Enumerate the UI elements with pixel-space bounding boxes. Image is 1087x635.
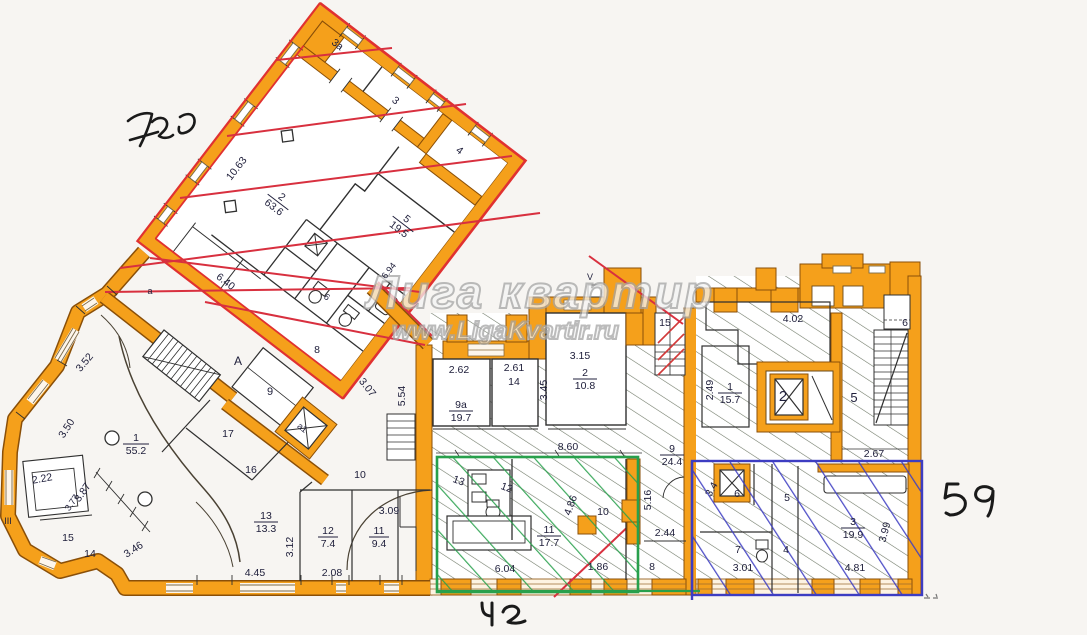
svg-text:10: 10 (597, 506, 609, 518)
svg-text:V: V (587, 272, 593, 282)
svg-text:15: 15 (659, 317, 671, 329)
svg-text:16: 16 (245, 464, 257, 476)
svg-text:6: 6 (902, 317, 908, 329)
svg-text:2.08: 2.08 (322, 567, 343, 579)
svg-text:www.LigaKvartir.ru: www.LigaKvartir.ru (392, 317, 619, 345)
svg-text:2: 2 (779, 388, 787, 405)
svg-text:3.09: 3.09 (379, 505, 400, 517)
svg-text:12: 12 (322, 525, 334, 537)
svg-text:11: 11 (374, 525, 385, 537)
svg-text:2.49: 2.49 (704, 380, 716, 401)
svg-text:14: 14 (84, 548, 96, 560)
svg-text:4.81: 4.81 (845, 562, 866, 574)
svg-text:17: 17 (222, 428, 234, 440)
svg-text:2.67: 2.67 (864, 448, 885, 460)
svg-text:a: a (147, 286, 152, 296)
svg-text:6.04: 6.04 (495, 563, 516, 575)
svg-text:8: 8 (649, 561, 655, 573)
svg-text:4.45: 4.45 (245, 567, 266, 579)
svg-text:3: 3 (850, 516, 856, 528)
svg-text:19.9: 19.9 (843, 529, 864, 541)
svg-text:5: 5 (850, 390, 857, 405)
svg-text:10.8: 10.8 (575, 380, 596, 392)
svg-text:9.4: 9.4 (372, 538, 387, 550)
svg-text:8.60: 8.60 (558, 441, 579, 453)
svg-text:5.54: 5.54 (396, 386, 408, 407)
svg-text:2.61: 2.61 (504, 362, 525, 374)
svg-text:2.62: 2.62 (449, 364, 470, 376)
svg-text:8: 8 (314, 344, 320, 356)
svg-text:Лига квартир: Лига квартир (364, 266, 714, 318)
svg-text:2: 2 (582, 367, 588, 379)
svg-text:3.15: 3.15 (570, 350, 591, 362)
svg-text:5.16: 5.16 (642, 490, 654, 511)
svg-text:1: 1 (133, 432, 139, 444)
svg-text:3.45: 3.45 (538, 380, 550, 401)
svg-text:19.7: 19.7 (451, 412, 472, 424)
svg-text:4: 4 (783, 544, 789, 556)
svg-text:3.01: 3.01 (733, 562, 754, 574)
svg-text:III: III (4, 516, 12, 526)
svg-text:11: 11 (544, 524, 555, 536)
svg-text:3.12: 3.12 (284, 537, 296, 558)
svg-text:A: A (234, 354, 242, 368)
svg-text:15: 15 (62, 532, 74, 544)
svg-text:55.2: 55.2 (126, 445, 147, 457)
svg-text:2.44: 2.44 (655, 527, 676, 539)
svg-text:4.02: 4.02 (783, 313, 804, 325)
svg-text:13.3: 13.3 (256, 523, 277, 535)
svg-text:13: 13 (260, 510, 272, 522)
svg-text:1.86: 1.86 (588, 561, 609, 573)
svg-text:7.4: 7.4 (321, 538, 336, 550)
svg-text:17.7: 17.7 (539, 537, 560, 549)
svg-text:5: 5 (784, 492, 790, 504)
svg-text:15.7: 15.7 (720, 394, 741, 406)
svg-text:10: 10 (354, 469, 366, 481)
svg-text:9: 9 (267, 386, 273, 398)
svg-text:9: 9 (669, 443, 675, 455)
svg-text:1: 1 (727, 381, 733, 393)
svg-text:14: 14 (508, 376, 520, 388)
svg-text:24.4: 24.4 (662, 456, 683, 468)
svg-text:6: 6 (734, 488, 740, 500)
svg-text:9a: 9a (455, 399, 467, 411)
svg-text:7: 7 (735, 544, 741, 556)
